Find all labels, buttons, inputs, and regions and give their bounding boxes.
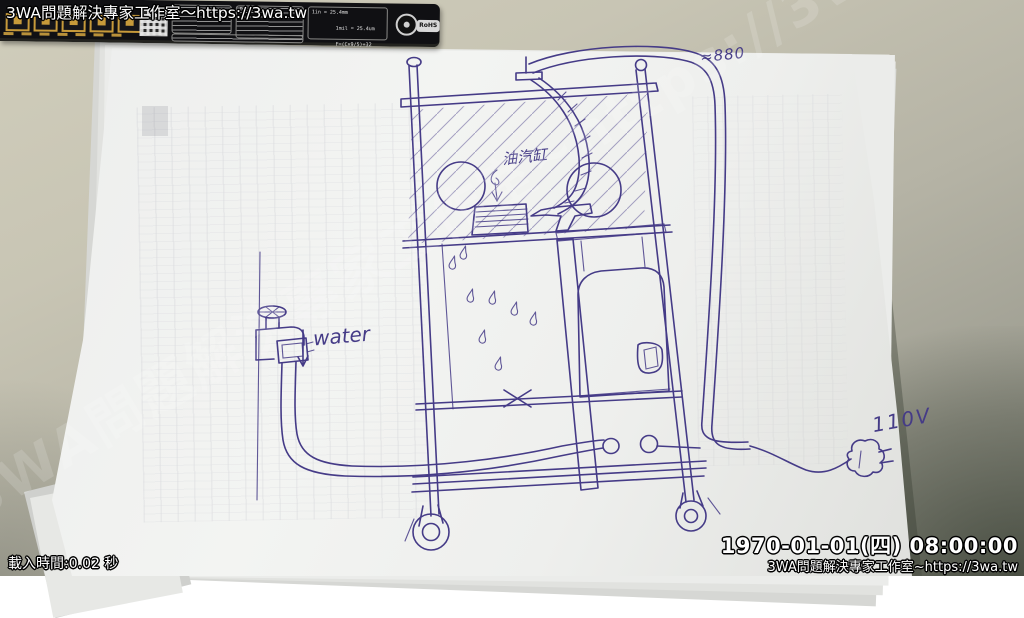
ruler-strip	[171, 33, 303, 43]
photo-scene: 油汽缸 water ≈880 110V Delay: 1in = 25.4mm …	[0, 0, 1024, 576]
ruler-conversion-table: 1in = 25.4mm 1mil = 25.4um F=(C×9/5)+32	[307, 6, 387, 40]
gas-tank	[578, 268, 669, 397]
logo-icon	[396, 14, 418, 36]
rohs-badge: RoHS	[417, 20, 440, 32]
watermark-top-left: 3WA問題解決專家工作室～https://3wa.tw	[6, 1, 307, 23]
hand-drawn-cart-sketch	[0, 0, 1024, 576]
pcb-gold-strip	[3, 32, 123, 37]
watermark-bottom-right: 3WA問題解決專家工作室~https://3wa.tw	[767, 556, 1018, 575]
load-time-text: 載入時間:0.02 秒	[8, 553, 118, 573]
caster-wheels	[405, 491, 720, 550]
